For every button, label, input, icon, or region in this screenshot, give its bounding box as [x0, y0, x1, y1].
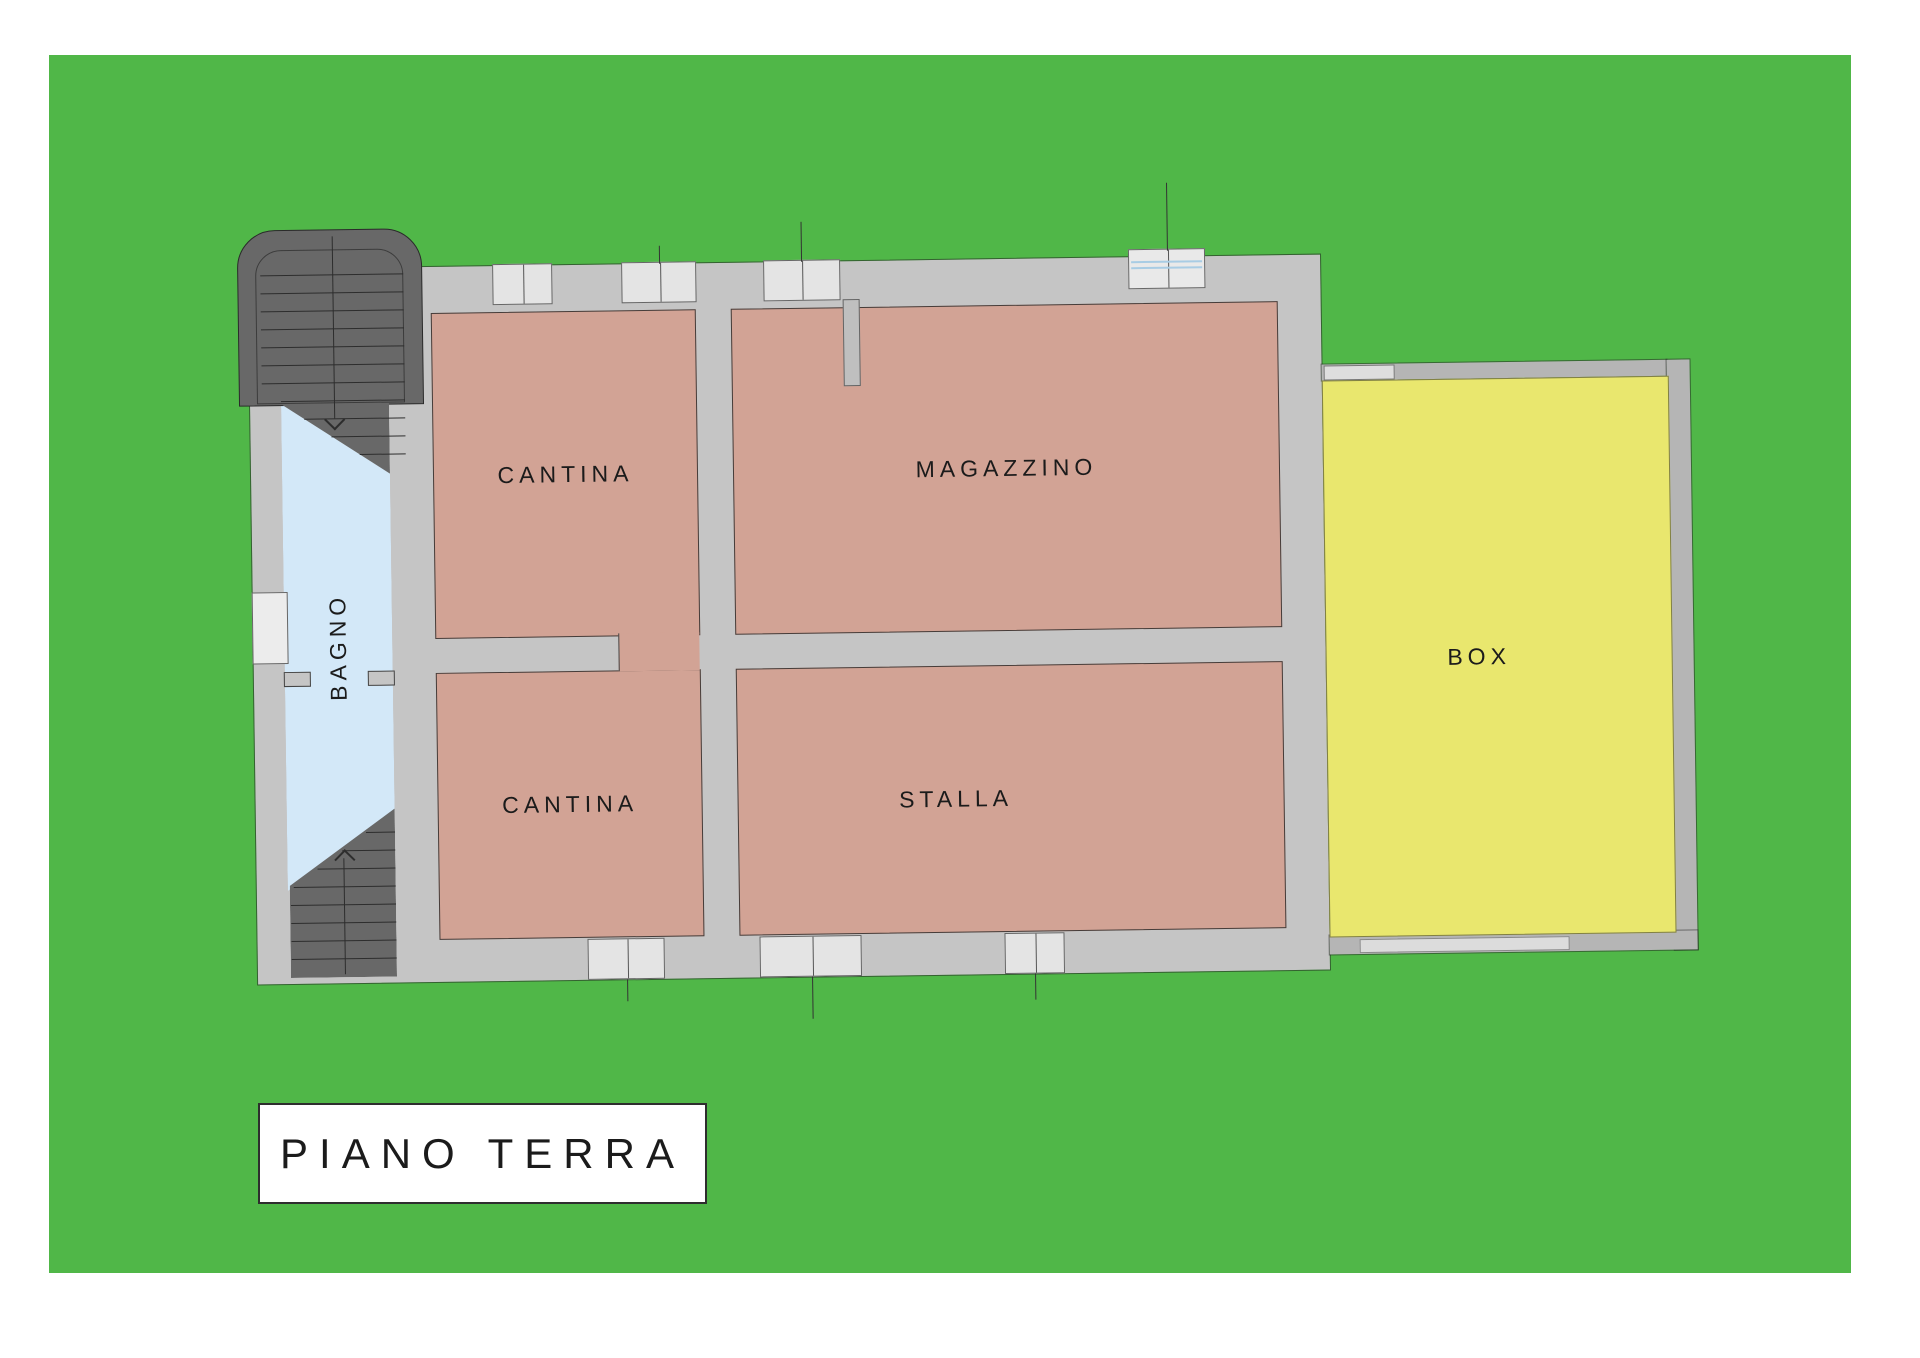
- partition-stub: [843, 299, 861, 386]
- room-label: CANTINA: [497, 460, 633, 489]
- window: [588, 938, 666, 980]
- window-mullion: [628, 939, 630, 978]
- room-stalla: STALLA: [736, 661, 1287, 936]
- room-label: STALLA: [899, 785, 1013, 814]
- room-label: MAGAZZINO: [915, 453, 1097, 483]
- window: [252, 592, 289, 664]
- floor-plan-page: CANTINA MAGAZZINO CANTINA STALLA BAGNO: [0, 0, 1920, 1358]
- box-window: [1324, 365, 1395, 381]
- window: [492, 263, 553, 305]
- window: [1004, 932, 1065, 974]
- reference-line: [1035, 974, 1036, 1000]
- window-mullion: [660, 263, 662, 302]
- window: [621, 261, 697, 303]
- room-label: BAGNO: [324, 593, 353, 701]
- room-cantina-top: CANTINA: [431, 309, 701, 639]
- room-label: CANTINA: [502, 790, 638, 819]
- reference-line: [1166, 183, 1168, 251]
- room-box: BOX: [1322, 376, 1677, 938]
- window: [759, 935, 862, 977]
- reference-line: [659, 246, 660, 264]
- glazing-line: [1131, 260, 1202, 263]
- room-label: BOX: [1447, 643, 1511, 671]
- window: [763, 259, 841, 301]
- box-door-opening: [1360, 936, 1570, 953]
- glazing-line: [1131, 266, 1202, 269]
- window-mullion: [523, 265, 525, 304]
- door-jamb: [284, 672, 311, 687]
- window-mullion: [812, 937, 814, 976]
- window-mullion: [1035, 934, 1037, 973]
- door-opening-cantina: [618, 632, 700, 671]
- window-mullion: [802, 261, 804, 300]
- plan-title: PIANO TERRA: [280, 1130, 685, 1178]
- door-jamb: [368, 671, 395, 686]
- reference-line: [627, 979, 628, 1001]
- plan-title-box: PIANO TERRA: [258, 1103, 707, 1204]
- reference-line: [812, 977, 814, 1019]
- reference-line: [801, 222, 803, 262]
- room-magazzino: MAGAZZINO: [731, 301, 1282, 635]
- room-bagno: BAGNO: [281, 403, 396, 891]
- room-cantina-bottom: CANTINA: [436, 669, 705, 940]
- window-glazed: [1128, 248, 1206, 289]
